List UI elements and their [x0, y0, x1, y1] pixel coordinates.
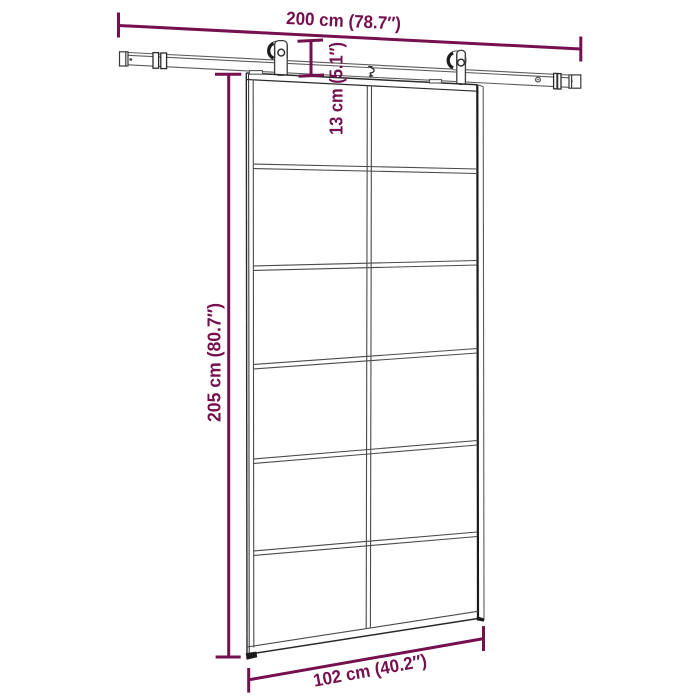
svg-text:13 cm (5.1″): 13 cm (5.1″) [327, 42, 347, 135]
svg-text:205 cm (80.7″): 205 cm (80.7″) [205, 303, 225, 422]
